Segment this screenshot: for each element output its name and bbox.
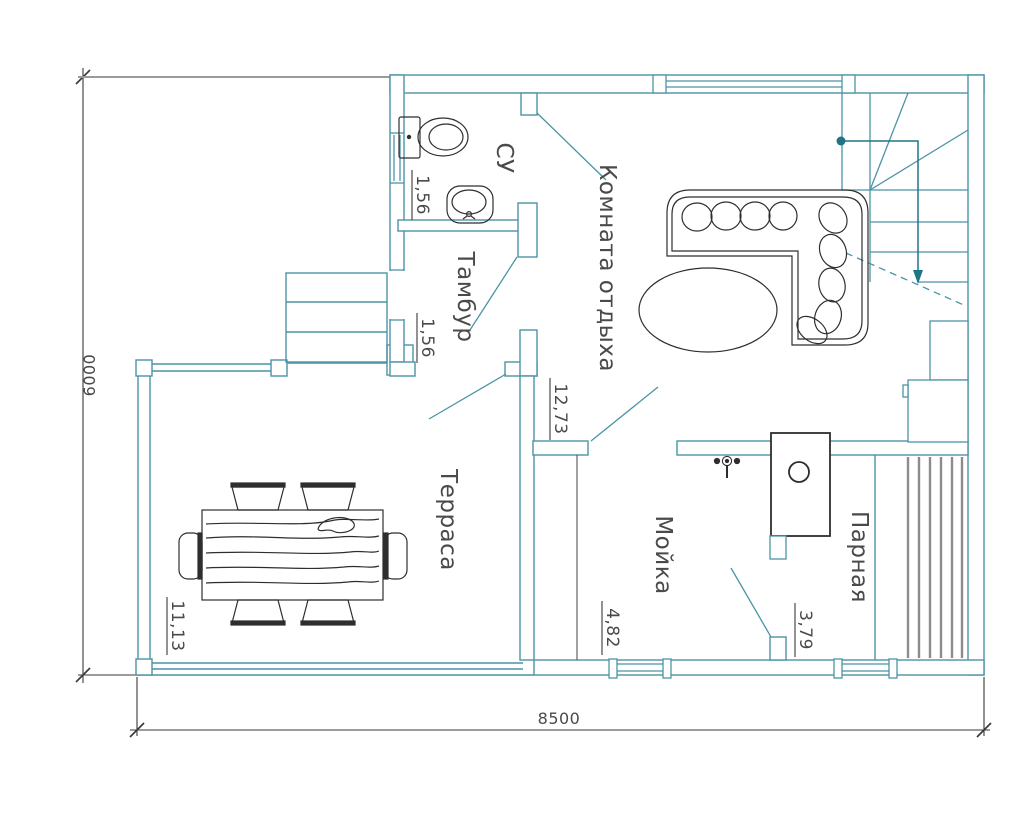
wall-partition-stub <box>533 441 588 455</box>
window-jamb <box>653 75 666 93</box>
sink <box>447 186 493 223</box>
walk-start-dot <box>837 137 846 146</box>
area-tambur: 1,56 <box>417 313 437 363</box>
understair-shelf <box>930 321 968 380</box>
wall-tambur-east-lower <box>520 330 537 376</box>
room-label-terrasa: Терраса <box>435 468 461 571</box>
room-label-su: СУ <box>491 142 517 173</box>
corner-sofa <box>667 190 868 349</box>
room-label-tambur: Тамбур <box>452 251 478 343</box>
svg-text:3,79: 3,79 <box>795 610 815 650</box>
svg-text:4,82: 4,82 <box>602 608 622 648</box>
stove-door <box>770 536 786 559</box>
wall-tambur-south-left <box>390 362 415 376</box>
staircase <box>842 93 968 442</box>
windows <box>389 75 897 678</box>
wall-south <box>534 660 984 675</box>
stair-cut-line <box>846 253 966 306</box>
window-jamb <box>834 659 842 678</box>
sauna-stove <box>771 433 830 536</box>
svg-text:1,56: 1,56 <box>417 318 437 358</box>
dimension-width: 8500 <box>538 709 581 728</box>
svg-text:11,13: 11,13 <box>167 600 187 651</box>
area-moyka: 4,82 <box>602 601 622 655</box>
window-jamb <box>663 659 671 678</box>
room-label-parnaya: Парная <box>846 511 872 603</box>
oval-table <box>639 268 777 352</box>
door-leaf-parnaya <box>731 568 771 637</box>
terrace-post <box>271 360 287 376</box>
floor-plan-page: СУ Тамбур Комната отдыха Терраса Мойка П… <box>0 0 1024 819</box>
svg-text:1,56: 1,56 <box>412 175 432 215</box>
floor-plan-canvas: СУ Тамбур Комната отдыха Терраса Мойка П… <box>0 0 1024 819</box>
window-jamb <box>889 659 897 678</box>
window-jamb <box>842 75 855 93</box>
sauna-bench-slats <box>908 457 962 658</box>
terrace-post <box>136 360 152 376</box>
wall-tambur-east-upper <box>518 203 537 257</box>
toilet <box>399 117 468 158</box>
wall-su-east-stub <box>521 93 537 115</box>
window-jamb <box>609 659 617 678</box>
dimension-height: 6000 <box>80 354 99 397</box>
wall-parnaya-door-stub <box>770 637 786 660</box>
stair-walk-markers <box>837 137 924 285</box>
terrace-post <box>136 659 152 675</box>
area-parnaya: 3,79 <box>795 603 815 657</box>
terrace-chairs <box>179 483 407 625</box>
walls <box>390 75 984 675</box>
door-leaf-terrace <box>429 374 506 419</box>
shower-symbol <box>714 456 739 478</box>
terrace-table <box>202 510 383 600</box>
porch-steps <box>286 273 387 362</box>
room-label-moyka: Мойка <box>650 515 676 594</box>
area-terrasa: 11,13 <box>167 597 187 655</box>
area-su: 1,56 <box>412 170 432 220</box>
wall-moyka-west <box>520 376 534 660</box>
area-komnata: 12,73 <box>550 378 570 440</box>
wall-su-south <box>398 220 523 231</box>
svg-text:12,73: 12,73 <box>550 383 570 434</box>
understair-shelf <box>908 380 968 442</box>
room-label-komnata-otdyha: Комната отдыха <box>594 164 620 372</box>
door-leaf-moyka <box>591 387 658 441</box>
wall-right <box>968 75 984 675</box>
entrance-door-opening <box>389 271 405 319</box>
